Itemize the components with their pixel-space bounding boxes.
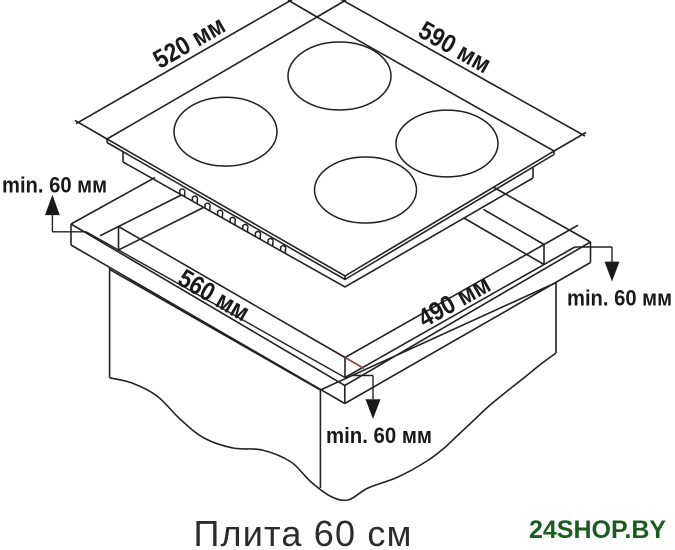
svg-text:Плита 60 см: Плита 60 см	[193, 513, 412, 550]
svg-text:520 мм: 520 мм	[148, 10, 231, 75]
svg-text:24SHOP.BY: 24SHOP.BY	[529, 516, 666, 544]
svg-text:560 мм: 560 мм	[173, 263, 255, 327]
svg-text:min. 60 мм: min. 60 мм	[567, 285, 672, 310]
svg-text:590 мм: 590 мм	[414, 15, 497, 80]
svg-text:min. 60 мм: min. 60 мм	[2, 172, 107, 197]
svg-text:min. 60 мм: min. 60 мм	[326, 423, 432, 448]
